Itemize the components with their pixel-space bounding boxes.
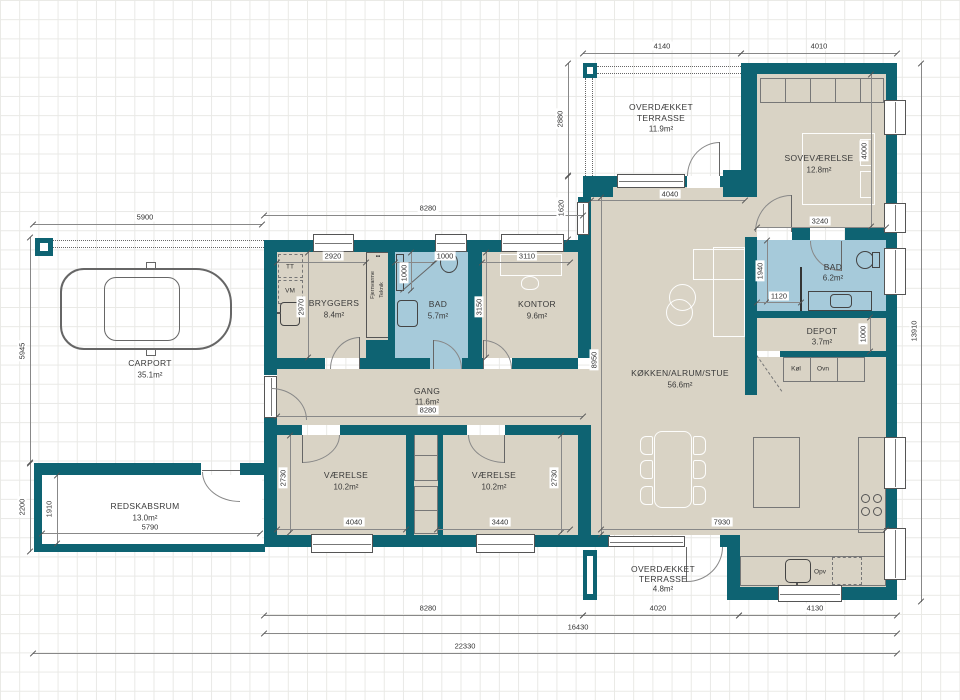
window — [617, 174, 685, 188]
dim-label: 1940 — [756, 261, 765, 282]
dim-line — [601, 529, 886, 530]
window — [501, 234, 564, 252]
room-area-depot: 3.7m² — [812, 338, 832, 347]
dim-line — [486, 252, 487, 358]
dim-line — [921, 63, 922, 602]
dim-label: 8950 — [590, 350, 599, 371]
wall — [727, 587, 780, 600]
wall — [720, 535, 727, 547]
room-area-hall: 11.6m² — [415, 398, 439, 407]
wall — [886, 63, 897, 600]
window — [313, 234, 354, 252]
dim-label: 3110 — [517, 252, 537, 261]
room-label-terrace-north-2: TERRASSE — [637, 113, 685, 123]
label-tech: Teknik — [379, 282, 385, 298]
dim-label: 2730 — [550, 468, 559, 489]
vanity-sink — [830, 294, 852, 308]
dim-label: 4020 — [648, 604, 669, 613]
room-area-living: 56.6m² — [668, 381, 693, 390]
dim-line — [30, 463, 31, 552]
wall — [438, 425, 443, 535]
dim-line — [568, 176, 569, 240]
dim-label: 2200 — [18, 497, 27, 518]
bath-sink — [397, 300, 418, 327]
room-area-shed: 13.0m² — [133, 514, 158, 523]
room-area-bath-small: 5.7m² — [428, 312, 448, 321]
dim-line — [33, 224, 262, 225]
wardrobe — [760, 78, 884, 103]
car-mirror — [146, 262, 156, 269]
window — [884, 528, 906, 580]
dim-label: 1620 — [557, 198, 566, 219]
label-fridge: Køl — [791, 366, 801, 373]
dim-label: 8280 — [418, 604, 439, 613]
chair — [640, 486, 653, 505]
cooktop-burner — [873, 494, 882, 503]
chair — [640, 436, 653, 455]
wall — [578, 425, 591, 535]
roof-line — [597, 73, 741, 74]
dim-line — [601, 197, 602, 535]
room-label-office: KONTOR — [518, 299, 556, 309]
dim-label: 4000 — [860, 141, 869, 162]
dim-label: 1910 — [45, 499, 54, 520]
room-label-bedroom: SOVEVÆRELSE — [785, 153, 854, 163]
dim-line — [290, 435, 291, 533]
wall — [792, 228, 810, 240]
closet-shelf — [414, 510, 438, 511]
dim-line — [482, 262, 570, 263]
room-label-carport: CARPORT — [128, 358, 172, 368]
wall — [366, 340, 390, 358]
dim-line — [583, 615, 739, 616]
door-opening — [687, 176, 720, 188]
toilet-tank — [872, 252, 880, 268]
room-area-room-left: 10.2m² — [334, 483, 359, 492]
dim-label: 5790 — [140, 523, 161, 532]
cooktop-burner — [861, 494, 870, 503]
dim-label: 8280 — [418, 204, 439, 213]
dishwasher — [832, 557, 862, 585]
dim-label: 4130 — [805, 604, 826, 613]
door-leaf — [719, 142, 720, 176]
dim-label: 1000 — [435, 252, 456, 261]
dim-line — [277, 529, 406, 530]
chair — [640, 460, 653, 479]
carport-post-core — [40, 243, 48, 251]
dim-label: 3440 — [490, 518, 511, 527]
window — [884, 100, 906, 135]
chair — [693, 486, 706, 505]
room-area-bryggers: 8.4m² — [324, 311, 344, 320]
dim-label: 1000 — [400, 263, 409, 284]
wall — [340, 425, 467, 435]
label-tumble-dryer: TT — [286, 264, 294, 271]
cooktop-burner — [861, 507, 870, 516]
dim-label: 2880 — [556, 109, 565, 130]
dim-line — [264, 615, 583, 616]
dim-line — [591, 200, 745, 201]
sofa — [713, 247, 745, 337]
dim-label: 2730 — [279, 468, 288, 489]
dim-line — [264, 215, 583, 216]
dim-label: 3150 — [475, 297, 484, 318]
room-label-hall: GANG — [414, 386, 440, 396]
room-area-office: 9.6m² — [527, 312, 547, 321]
cooktop-burner — [873, 507, 882, 516]
wall — [845, 228, 886, 240]
wall — [240, 463, 265, 475]
door-leaf — [302, 435, 303, 463]
window — [311, 534, 373, 553]
wall — [388, 252, 395, 369]
dim-line — [561, 435, 562, 533]
room-label-living: KØKKEN/ALRUM/STUE — [631, 368, 729, 378]
window — [884, 248, 906, 295]
room-label-room-right: VÆRELSE — [472, 470, 516, 480]
kitchen-counter-east — [858, 437, 886, 533]
door-leaf — [202, 470, 240, 471]
door-arc — [687, 142, 720, 176]
terrace-post-core — [587, 67, 593, 74]
wall — [264, 240, 277, 375]
dim-label: 8280 — [418, 406, 439, 415]
dim-line — [757, 302, 801, 303]
dim-label: 2920 — [323, 252, 344, 261]
room-area-carport: 35.1m² — [138, 371, 163, 380]
dim-label: 5900 — [135, 213, 156, 222]
window — [884, 437, 906, 489]
vent-dots: •• — [376, 254, 381, 261]
chair — [693, 436, 706, 455]
window — [778, 585, 842, 602]
dim-line — [741, 53, 897, 54]
dim-line — [411, 252, 412, 291]
dim-line — [870, 317, 871, 352]
label-district-heating: Fjernvarme — [370, 271, 376, 299]
wall — [723, 170, 757, 197]
dim-line — [42, 533, 260, 534]
wall — [512, 358, 578, 369]
dim-label: 7930 — [712, 518, 733, 527]
dim-line — [30, 237, 31, 463]
dim-label: 4010 — [809, 42, 830, 51]
dining-table — [654, 431, 692, 508]
dim-label: 4040 — [660, 190, 681, 199]
dim-label: 1000 — [859, 324, 868, 345]
door-leaf — [433, 340, 434, 369]
door-leaf — [483, 340, 484, 369]
closet-shelf — [414, 455, 438, 456]
room-area-terrace-north: 11.9m² — [649, 125, 673, 134]
desk-chair — [521, 276, 539, 290]
roof-line — [53, 240, 264, 241]
roof-line — [597, 66, 741, 67]
room-label-terrace-south: OVERDÆKKET — [631, 564, 695, 574]
dim-line — [437, 529, 570, 530]
door-leaf — [359, 337, 360, 369]
dim-line — [568, 63, 569, 176]
car-cabin — [104, 277, 180, 341]
dim-line — [33, 653, 897, 654]
wall — [34, 463, 42, 552]
dim-line — [871, 74, 872, 227]
dim-line — [757, 227, 886, 228]
dim-line — [739, 615, 897, 616]
room-label-depot: DEPOT — [807, 326, 838, 336]
room-label-terrace-south-2: TERRASSE — [639, 574, 687, 584]
dim-label: 2970 — [297, 297, 306, 318]
room-label-bryggers: BRYGGERS — [309, 298, 359, 308]
room-label-bath-ensuite: BAD — [824, 262, 842, 272]
dim-line — [264, 633, 897, 634]
window — [476, 534, 535, 553]
window — [884, 203, 906, 233]
wall — [462, 358, 483, 369]
room-area-room-right: 10.2m² — [482, 483, 507, 492]
floor-plan: 4140 4010 2880 1620 5900 5945 2200 1910 … — [0, 0, 960, 700]
wall — [406, 425, 414, 535]
dim-label: 1120 — [769, 292, 789, 301]
dim-line — [277, 416, 583, 417]
wall — [583, 176, 613, 197]
room-area-bedroom: 12.8m² — [807, 166, 832, 175]
roof-line — [592, 78, 593, 176]
roof-line — [53, 247, 264, 248]
wall — [264, 418, 277, 547]
wall — [757, 311, 886, 318]
room-area-bath-ensuite: 6.2m² — [823, 274, 843, 283]
roof-line — [585, 78, 586, 176]
wall — [505, 425, 578, 435]
kitchen-sink — [785, 559, 811, 583]
dim-line — [767, 240, 768, 302]
wall — [34, 544, 265, 552]
dim-label: 4140 — [652, 42, 673, 51]
dim-label: 5945 — [18, 341, 27, 362]
dim-label: 16430 — [566, 623, 591, 632]
window — [577, 202, 589, 235]
kitchen-island — [753, 437, 800, 508]
wall — [741, 63, 757, 178]
label-dishwasher: Opv — [814, 569, 826, 576]
wall — [277, 358, 325, 369]
chair — [693, 460, 706, 479]
room-label-shed: REDSKABSRUM — [111, 501, 180, 511]
wall — [840, 587, 897, 600]
dim-label: 22330 — [453, 642, 478, 651]
shower-wall — [800, 267, 802, 311]
window — [608, 536, 685, 547]
dim-line — [583, 53, 741, 54]
window — [435, 234, 467, 252]
label-washer: VM — [285, 288, 295, 295]
room-area-terrace-south: 4.8m² — [653, 585, 673, 594]
dim-label: 4040 — [344, 518, 365, 527]
door-leaf — [504, 435, 505, 463]
pouf — [666, 299, 693, 326]
car-mirror — [146, 349, 156, 356]
dim-label: 3240 — [810, 217, 831, 226]
room-label-room-left: VÆRELSE — [324, 470, 368, 480]
dim-label: 13910 — [910, 319, 919, 344]
label-oven: Ovn — [817, 366, 829, 373]
room-label-bath-small: BAD — [429, 299, 447, 309]
kitchen-counter-south — [740, 556, 886, 586]
room-label-terrace-north: OVERDÆKKET — [629, 102, 693, 112]
terrace-post-core — [587, 556, 593, 594]
wall — [360, 358, 430, 369]
floor-living-south — [591, 395, 886, 535]
